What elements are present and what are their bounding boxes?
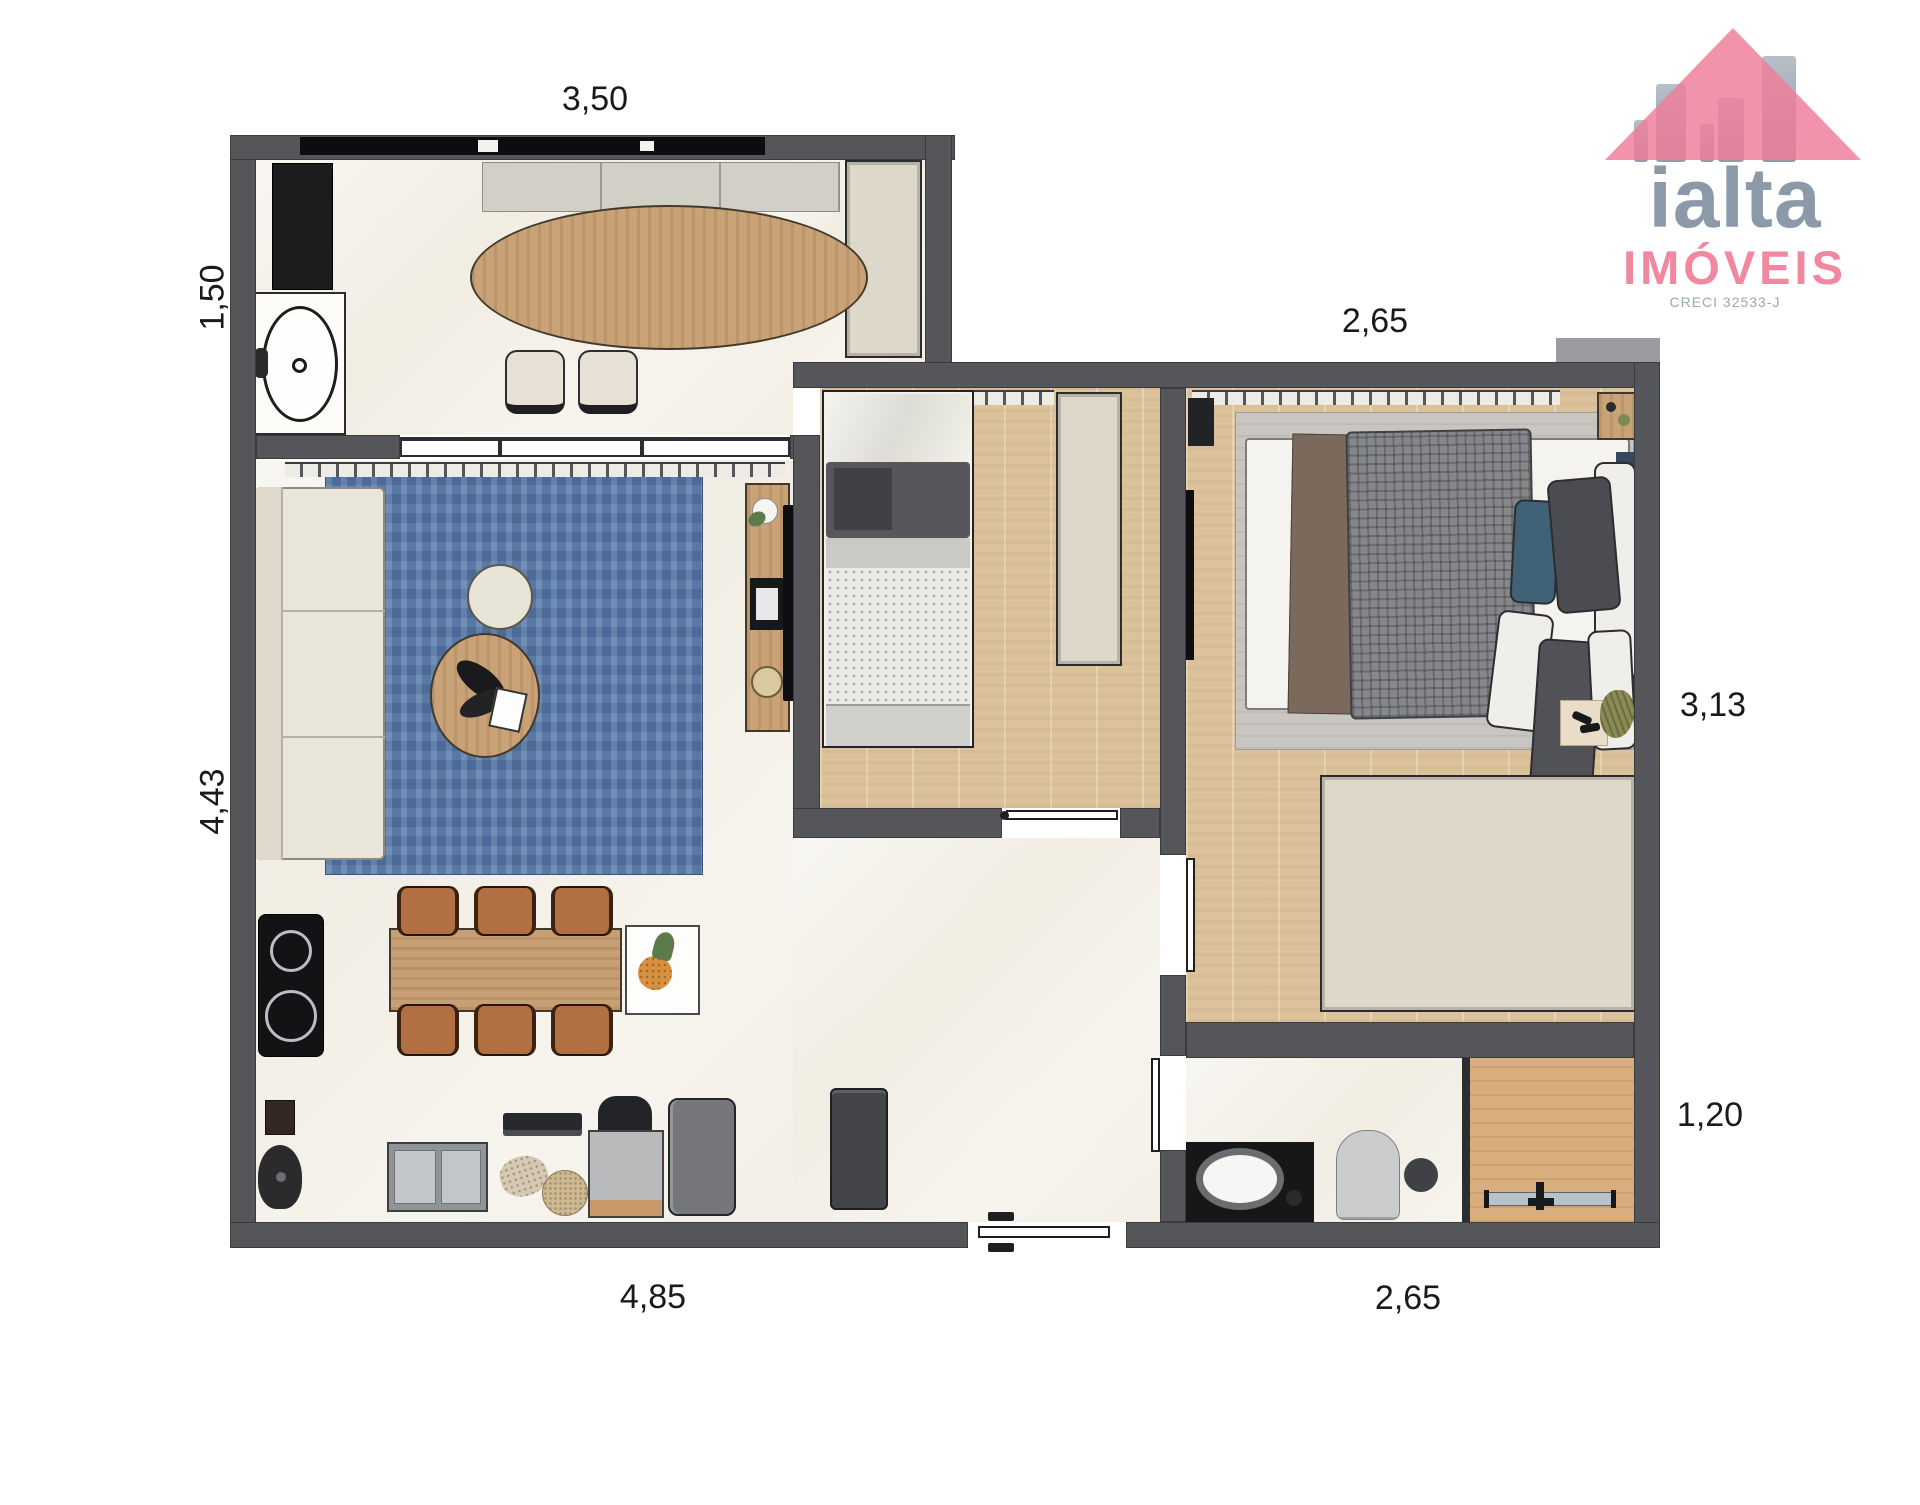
ottoman — [467, 564, 533, 630]
single-bed-blanket-fold — [834, 468, 892, 530]
console-clock — [751, 666, 783, 698]
wall-divider-lower — [1160, 1150, 1186, 1222]
tub-drain — [292, 358, 307, 373]
kitchen-cart-shelf — [590, 1200, 662, 1216]
single-bed-sheet-band — [826, 538, 970, 568]
dim-right-middle: 3,13 — [1638, 686, 1788, 725]
logo: ialta IMÓVEIS CRECI 32533-J — [1555, 22, 1915, 322]
shower-drain-end — [1611, 1190, 1616, 1208]
shower-faucet — [1528, 1198, 1554, 1206]
bathroom-door — [1151, 1058, 1160, 1152]
cooktop-burner — [270, 930, 312, 972]
sofa-backrest — [255, 487, 283, 860]
balcony-glazing — [300, 137, 765, 155]
wall-divider-upper — [1160, 388, 1186, 855]
single-bed-pillow — [826, 394, 970, 466]
wall-balcony-divider — [256, 435, 400, 459]
logo-license-text: CRECI 32533-J — [1555, 294, 1895, 310]
wall-small-bedroom-bottom-end — [1120, 808, 1160, 838]
wall-bottom-left — [230, 1222, 968, 1248]
sliding-door-mullion — [498, 437, 502, 457]
master-window — [1192, 390, 1560, 405]
trash-bin — [1404, 1158, 1438, 1192]
logo-brand-text: ialta — [1555, 150, 1915, 247]
dim-right-upper: 2,65 — [1300, 302, 1450, 341]
entry-door — [978, 1226, 1110, 1238]
bathroom-sink — [1196, 1148, 1284, 1210]
wall-balcony-right — [925, 135, 952, 388]
small-bedroom-wardrobe — [1056, 392, 1122, 666]
kettle-lid — [276, 1172, 286, 1182]
shower-glass — [1462, 1058, 1470, 1222]
nightstand-plant — [1618, 414, 1630, 426]
single-bed-duvet — [826, 568, 970, 704]
dining-chair — [474, 1004, 536, 1056]
dim-top: 3,50 — [520, 80, 670, 119]
wall-notch-topright — [1556, 338, 1660, 364]
master-wall-shelf — [1188, 398, 1214, 446]
dining-chair — [551, 886, 613, 936]
soap-dish — [254, 348, 268, 378]
balcony-chair — [505, 350, 565, 414]
floor-plan: 3,50 1,50 4,43 2,65 3,13 1,20 4,85 2,65 … — [0, 0, 1920, 1505]
wall-top-right-wing — [793, 362, 1660, 388]
small-bedroom-door — [1006, 810, 1118, 820]
logo-subtitle-text: IMÓVEIS — [1555, 240, 1915, 295]
dim-right-lower: 1,20 — [1635, 1096, 1785, 1135]
glazing-tick — [640, 141, 654, 151]
dim-left-lower: 4,43 — [194, 732, 233, 872]
entry-cabinet — [830, 1088, 888, 1210]
master-wardrobe — [1320, 775, 1636, 1012]
toilet — [1336, 1130, 1400, 1220]
dining-chair — [397, 886, 459, 936]
coffee-machine — [265, 1100, 295, 1135]
fridge — [668, 1098, 736, 1216]
wall-bottom-right — [1126, 1222, 1660, 1248]
basket-decor — [542, 1170, 588, 1216]
dishwasher — [503, 1113, 582, 1136]
wall-bathroom-top — [1186, 1022, 1634, 1058]
entry-door-handle — [988, 1243, 1014, 1252]
shower-drain-end — [1484, 1190, 1489, 1208]
dim-left-upper: 1,50 — [194, 228, 233, 368]
sink-basin — [441, 1150, 481, 1204]
console-media-screen — [756, 588, 778, 620]
dining-table — [389, 928, 622, 1012]
dining-chair — [474, 886, 536, 936]
door-hinge — [1000, 811, 1009, 820]
sofa-seam — [283, 736, 385, 738]
balcony-oval-table — [470, 205, 868, 350]
pillow-dark — [1546, 475, 1621, 614]
dining-chair — [551, 1004, 613, 1056]
wall-left — [230, 135, 256, 1248]
master-wall-tv — [1186, 490, 1194, 660]
logo-roof-icon — [1605, 28, 1861, 160]
dining-chair — [397, 1004, 459, 1056]
wall-living-bedroom — [793, 435, 820, 838]
sink-faucet — [1286, 1190, 1302, 1206]
balcony-chair — [578, 350, 638, 414]
nightstand-decor — [1606, 402, 1616, 412]
grill-cabinet — [272, 163, 333, 290]
master-nightstand — [1597, 392, 1636, 440]
sliding-door — [400, 437, 790, 457]
master-bedroom-door — [1186, 858, 1195, 972]
sofa-seam — [283, 610, 385, 612]
wall-divider-mid — [1160, 975, 1186, 1056]
glazing-tick — [478, 140, 498, 152]
dim-bottom-right: 2,65 — [1333, 1279, 1483, 1318]
stand-mixer — [598, 1096, 652, 1133]
cooktop-burner — [265, 990, 317, 1042]
wall-small-bedroom-bottom — [793, 808, 1002, 838]
single-bed-foot — [826, 704, 970, 746]
sink-basin — [394, 1150, 436, 1204]
living-window-curtain — [285, 462, 785, 477]
entry-door-handle — [988, 1212, 1014, 1221]
dim-bottom-left: 4,85 — [578, 1278, 728, 1317]
sliding-door-mullion — [640, 437, 644, 457]
